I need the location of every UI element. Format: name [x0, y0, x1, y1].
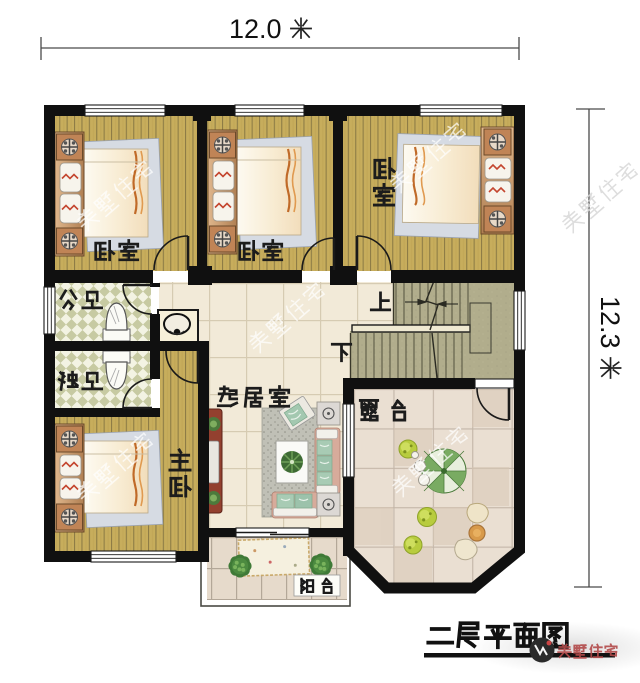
- svg-text:12.3: 12.3: [595, 296, 625, 349]
- svg-text:12.0: 12.0: [229, 14, 282, 44]
